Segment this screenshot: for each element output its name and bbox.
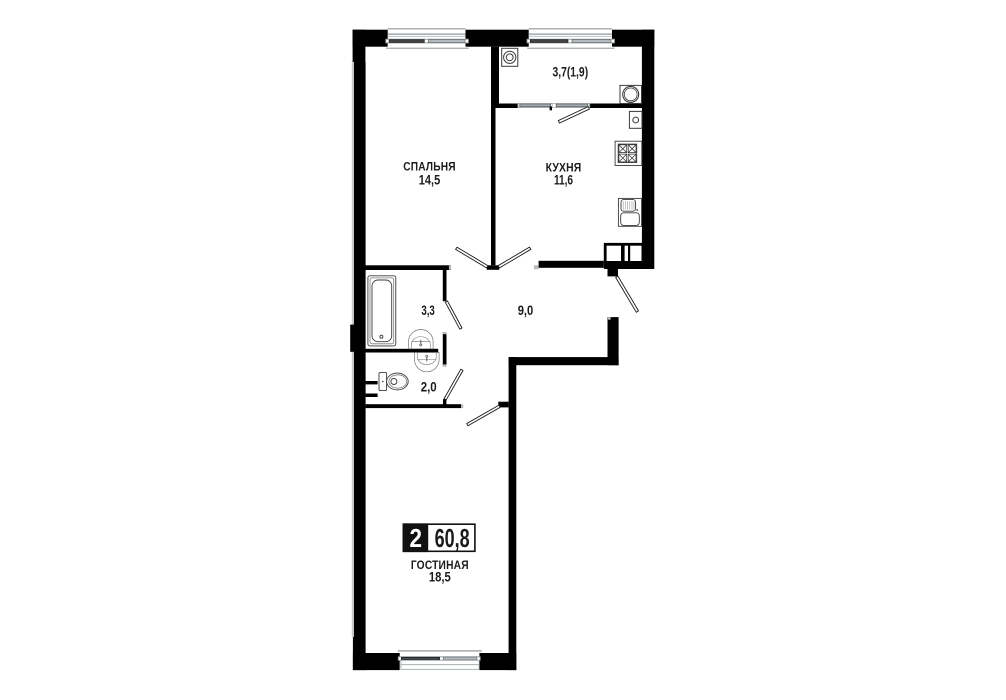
svg-text:14,5: 14,5 xyxy=(419,171,441,187)
svg-text:18,5: 18,5 xyxy=(429,569,451,585)
svg-text:11,6: 11,6 xyxy=(554,171,573,187)
svg-text:3,7(1,9): 3,7(1,9) xyxy=(552,63,588,79)
svg-text:9,0: 9,0 xyxy=(518,302,534,318)
svg-text:2: 2 xyxy=(409,523,422,553)
svg-text:60,8: 60,8 xyxy=(435,523,470,553)
svg-text:2,0: 2,0 xyxy=(421,378,437,394)
svg-text:3,3: 3,3 xyxy=(421,302,435,318)
